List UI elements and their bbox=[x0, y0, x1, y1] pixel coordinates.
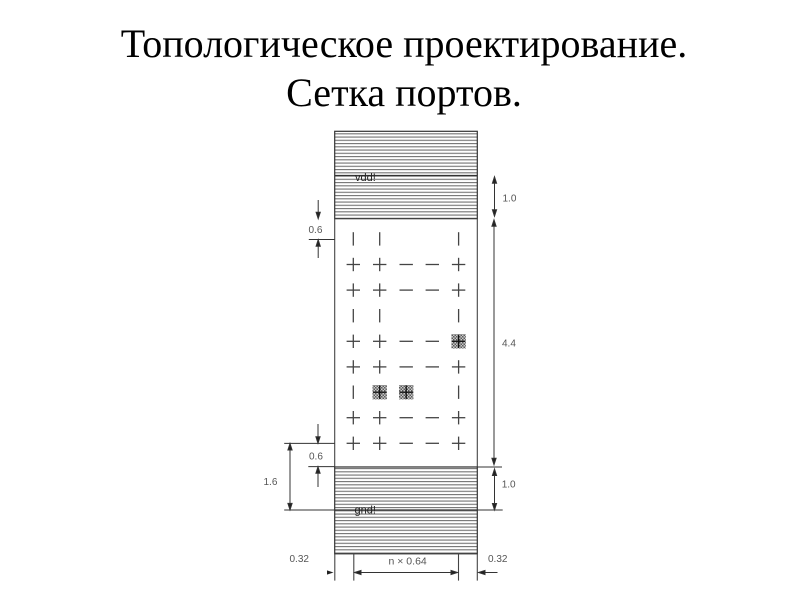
svg-text:gnd!: gnd! bbox=[355, 505, 376, 517]
svg-text:1.6: 1.6 bbox=[264, 477, 278, 488]
svg-text:0.32: 0.32 bbox=[488, 554, 508, 565]
svg-text:0.6: 0.6 bbox=[309, 225, 323, 236]
svg-text:4.4: 4.4 bbox=[502, 339, 516, 350]
svg-text:1.0: 1.0 bbox=[503, 194, 517, 205]
svg-text:0.6: 0.6 bbox=[309, 452, 323, 463]
svg-text:1.0: 1.0 bbox=[502, 480, 516, 491]
svg-text:vdd!: vdd! bbox=[355, 172, 376, 184]
svg-text:n × 0.64: n × 0.64 bbox=[389, 556, 427, 568]
svg-text:0.32: 0.32 bbox=[290, 554, 310, 565]
